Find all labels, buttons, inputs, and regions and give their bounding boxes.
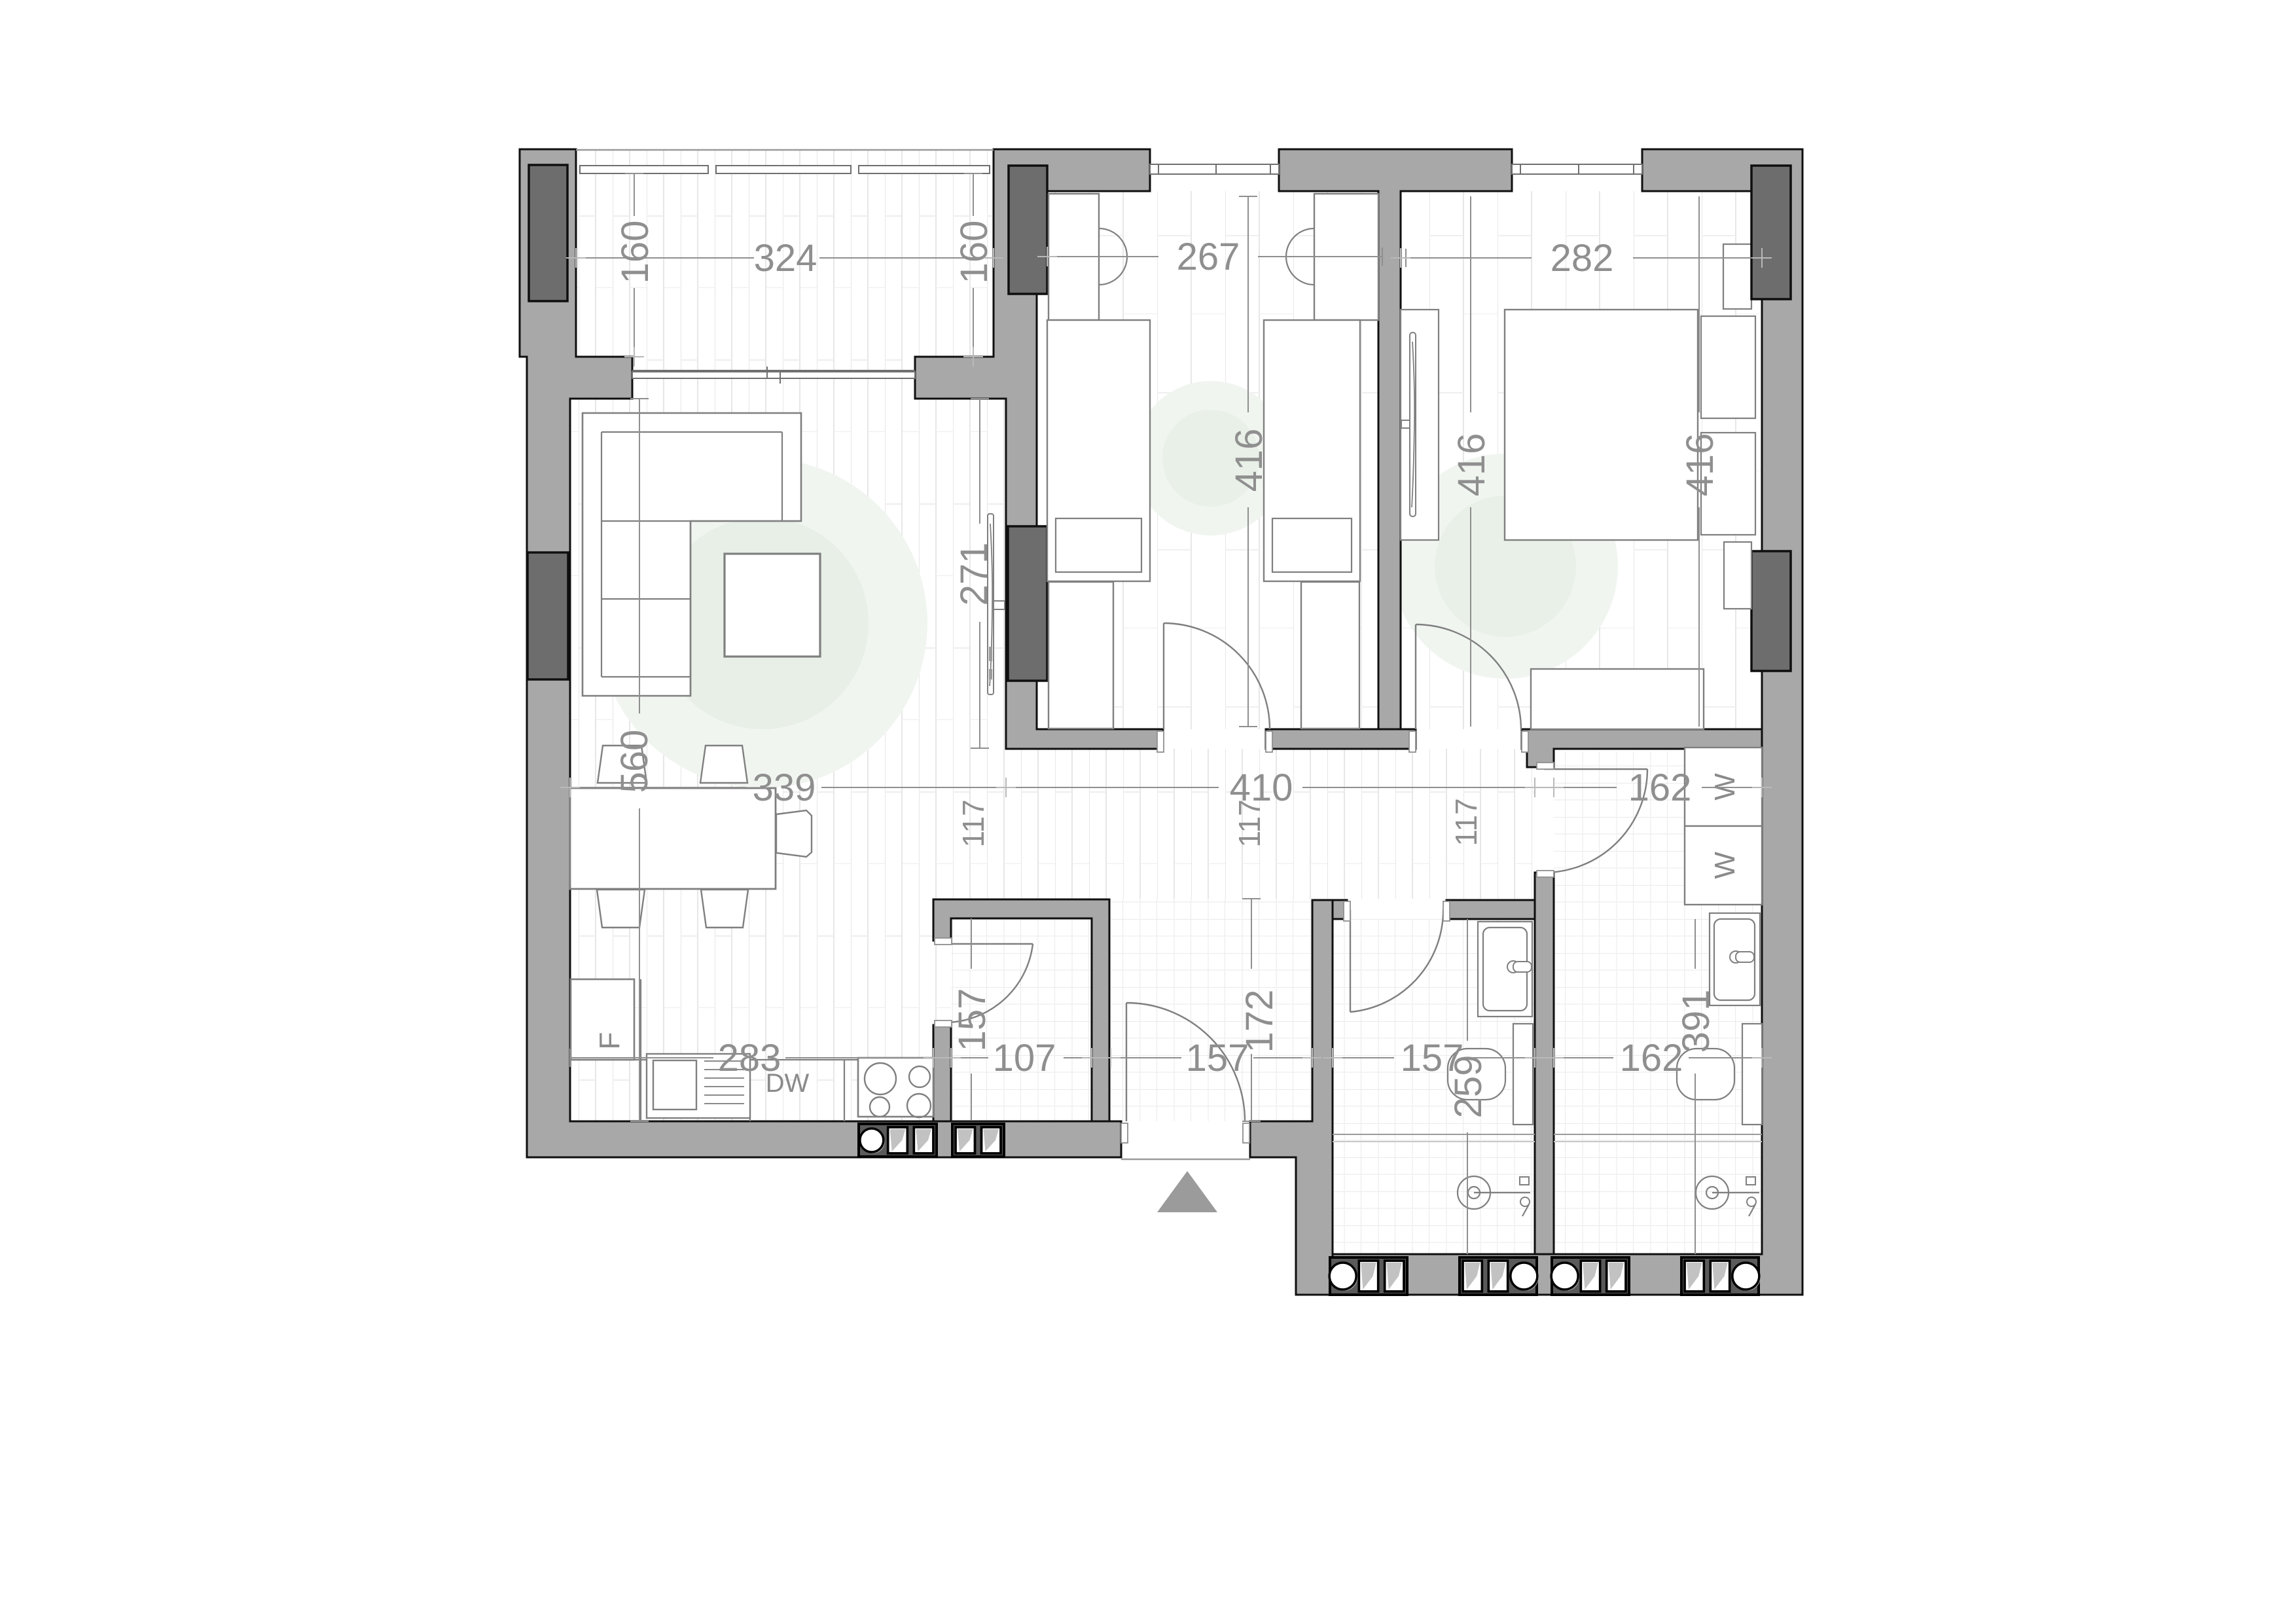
svg-text:416: 416: [1679, 433, 1721, 497]
svg-text:391: 391: [1675, 990, 1717, 1053]
svg-text:W: W: [1709, 773, 1741, 801]
svg-text:160: 160: [953, 221, 996, 284]
svg-text:560: 560: [613, 730, 656, 793]
svg-text:162: 162: [1628, 767, 1692, 809]
svg-text:F: F: [594, 1032, 626, 1050]
svg-text:339: 339: [753, 767, 816, 809]
svg-text:267: 267: [1177, 236, 1240, 278]
svg-text:282: 282: [1551, 237, 1614, 280]
svg-text:160: 160: [614, 221, 656, 284]
svg-text:107: 107: [993, 1037, 1056, 1079]
svg-text:259: 259: [1447, 1055, 1490, 1119]
svg-text:416: 416: [1228, 429, 1270, 492]
svg-text:157: 157: [951, 988, 994, 1052]
svg-text:117: 117: [1449, 798, 1483, 846]
svg-text:416: 416: [1450, 433, 1493, 497]
svg-text:W: W: [1709, 852, 1741, 879]
svg-text:283: 283: [718, 1037, 781, 1079]
svg-text:157: 157: [1186, 1037, 1249, 1079]
svg-text:117: 117: [956, 799, 990, 847]
svg-text:271: 271: [953, 543, 996, 606]
svg-text:162: 162: [1620, 1037, 1683, 1079]
svg-text:117: 117: [1232, 799, 1266, 847]
svg-text:324: 324: [754, 237, 817, 280]
